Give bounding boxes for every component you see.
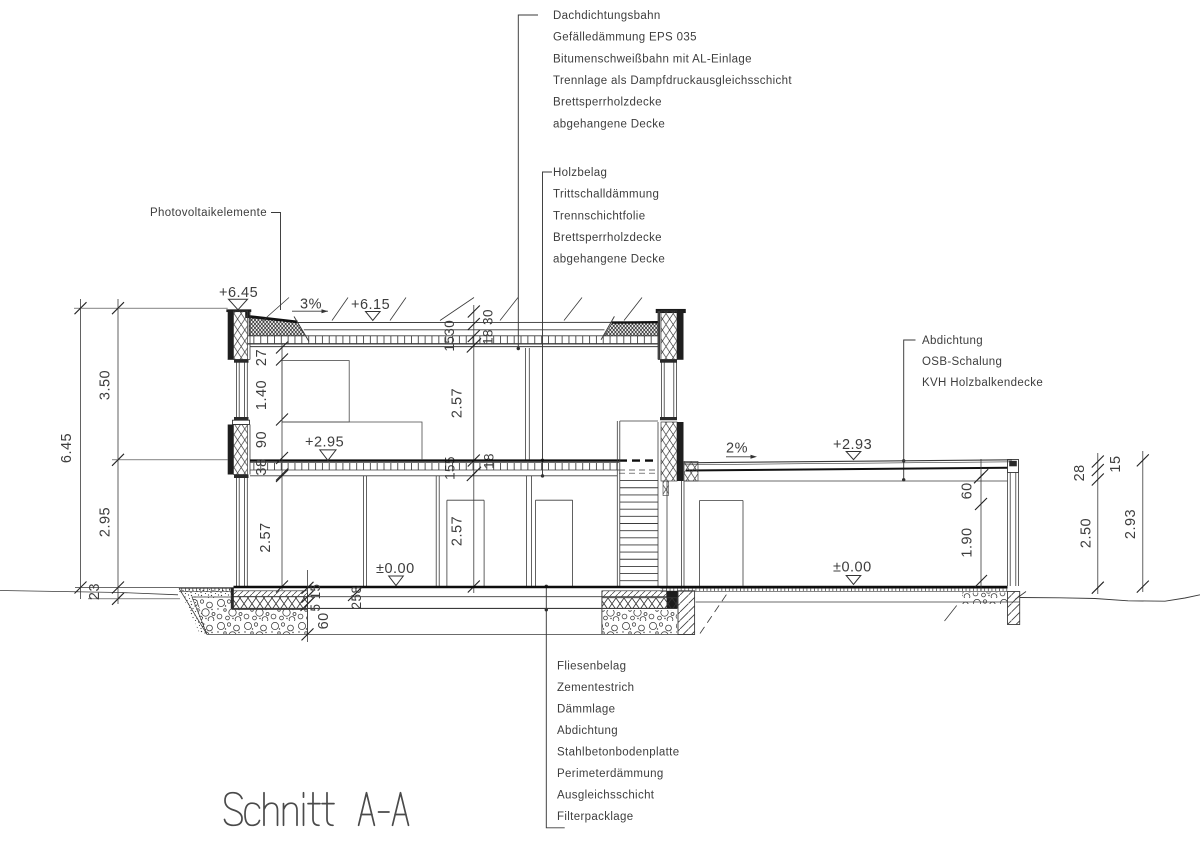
svg-text:2.50: 2.50 — [1079, 518, 1095, 548]
svg-text:2.57: 2.57 — [450, 516, 466, 546]
svg-text:2.95: 2.95 — [98, 507, 114, 537]
svg-text:Fliesenbelag: Fliesenbelag — [557, 660, 626, 672]
svg-text:Zementestrich: Zementestrich — [557, 682, 634, 694]
svg-text:38: 38 — [254, 458, 270, 475]
svg-text:1530: 1530 — [442, 320, 457, 352]
svg-text:3%: 3% — [300, 297, 322, 313]
svg-text:Photovoltaikelemente: Photovoltaikelemente — [150, 207, 267, 219]
svg-text:Bitumenschweißbahn mit AL-Ei: Bitumenschweißbahn mit AL-Einlage — [553, 53, 752, 65]
svg-text:60: 60 — [316, 612, 332, 629]
svg-text:+6.15: +6.15 — [351, 297, 390, 313]
svg-text:3.50: 3.50 — [98, 370, 114, 400]
svg-text:28: 28 — [1072, 464, 1088, 481]
svg-text:Holzbelag: Holzbelag — [553, 167, 607, 179]
svg-text:OSB-Schalung: OSB-Schalung — [922, 356, 1002, 368]
svg-text:Abdichtung: Abdichtung — [557, 725, 618, 737]
svg-text:KVH Holzbalkendecke: KVH Holzbalkendecke — [922, 377, 1043, 389]
svg-text:27: 27 — [254, 349, 270, 366]
svg-text:Gefälledämmung EPS 035: Gefälledämmung EPS 035 — [553, 32, 697, 44]
svg-text:Stahlbetonbodenplatte: Stahlbetonbodenplatte — [557, 746, 679, 758]
svg-text:Abdichtung: Abdichtung — [922, 335, 983, 347]
svg-text:1.90: 1.90 — [960, 527, 976, 557]
svg-text:90: 90 — [254, 431, 270, 448]
svg-text:2.93: 2.93 — [1123, 509, 1139, 539]
svg-text:+2.93: +2.93 — [833, 437, 872, 453]
svg-text:2%: 2% — [726, 441, 748, 457]
svg-text:Dämmlage: Dämmlage — [557, 703, 615, 715]
svg-text:+2.95: +2.95 — [305, 435, 344, 451]
svg-text:Ausgleichsschicht: Ausgleichsschicht — [557, 789, 655, 801]
svg-text:Filterpacklage: Filterpacklage — [557, 811, 634, 823]
svg-text:±0.00: ±0.00 — [833, 560, 872, 576]
svg-text:6.45: 6.45 — [59, 433, 75, 463]
svg-text:±0.00: ±0.00 — [376, 561, 415, 577]
svg-text:1.40: 1.40 — [254, 380, 270, 410]
svg-text:60: 60 — [960, 482, 976, 499]
svg-text:15: 15 — [1108, 455, 1124, 472]
svg-text:abgehangene Decke: abgehangene Decke — [553, 254, 665, 266]
svg-text:Brettsperrholzdecke: Brettsperrholzdecke — [553, 97, 662, 109]
svg-text:Dachdichtungsbahn: Dachdichtungsbahn — [553, 10, 661, 22]
svg-text:18 30: 18 30 — [481, 309, 496, 345]
svg-text:2.57: 2.57 — [258, 522, 274, 552]
svg-text:Brettsperrholzdecke: Brettsperrholzdecke — [553, 232, 662, 244]
svg-text:258: 258 — [349, 586, 364, 610]
svg-text:Perimeterdämmung: Perimeterdämmung — [557, 768, 664, 780]
svg-text:+6.45: +6.45 — [219, 285, 258, 301]
svg-text:abgehangene Decke: abgehangene Decke — [553, 118, 665, 130]
svg-text:2.57: 2.57 — [450, 388, 466, 418]
svg-text:Trennschichtfolie: Trennschichtfolie — [553, 210, 645, 222]
svg-text:Trittschalldämmung: Trittschalldämmung — [553, 189, 659, 201]
svg-text:23: 23 — [87, 583, 103, 600]
svg-text:5 15: 5 15 — [308, 584, 323, 612]
svg-text:Trennlage als Dampfdruckausg: Trennlage als Dampfdruckausgleichsschich… — [553, 75, 792, 87]
